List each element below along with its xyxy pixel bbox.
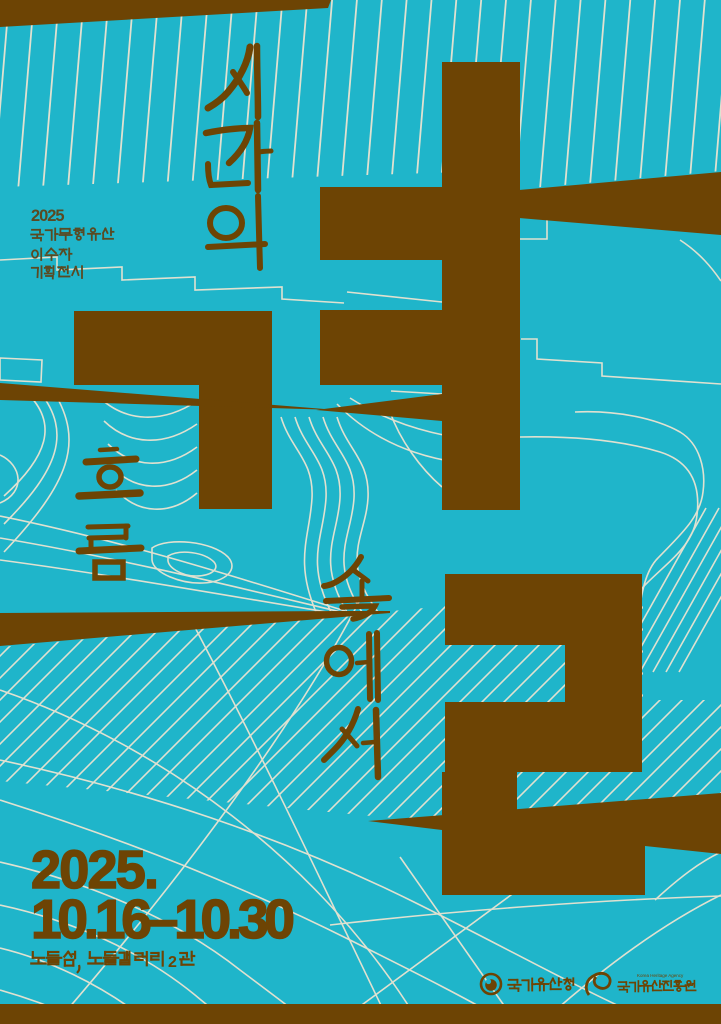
svg-text:2: 2 — [168, 954, 177, 971]
svg-text:10.16–10.30: 10.16–10.30 — [31, 888, 295, 950]
svg-text:Korea Heritage Agency: Korea Heritage Agency — [637, 973, 684, 978]
svg-text:2025: 2025 — [31, 207, 65, 225]
